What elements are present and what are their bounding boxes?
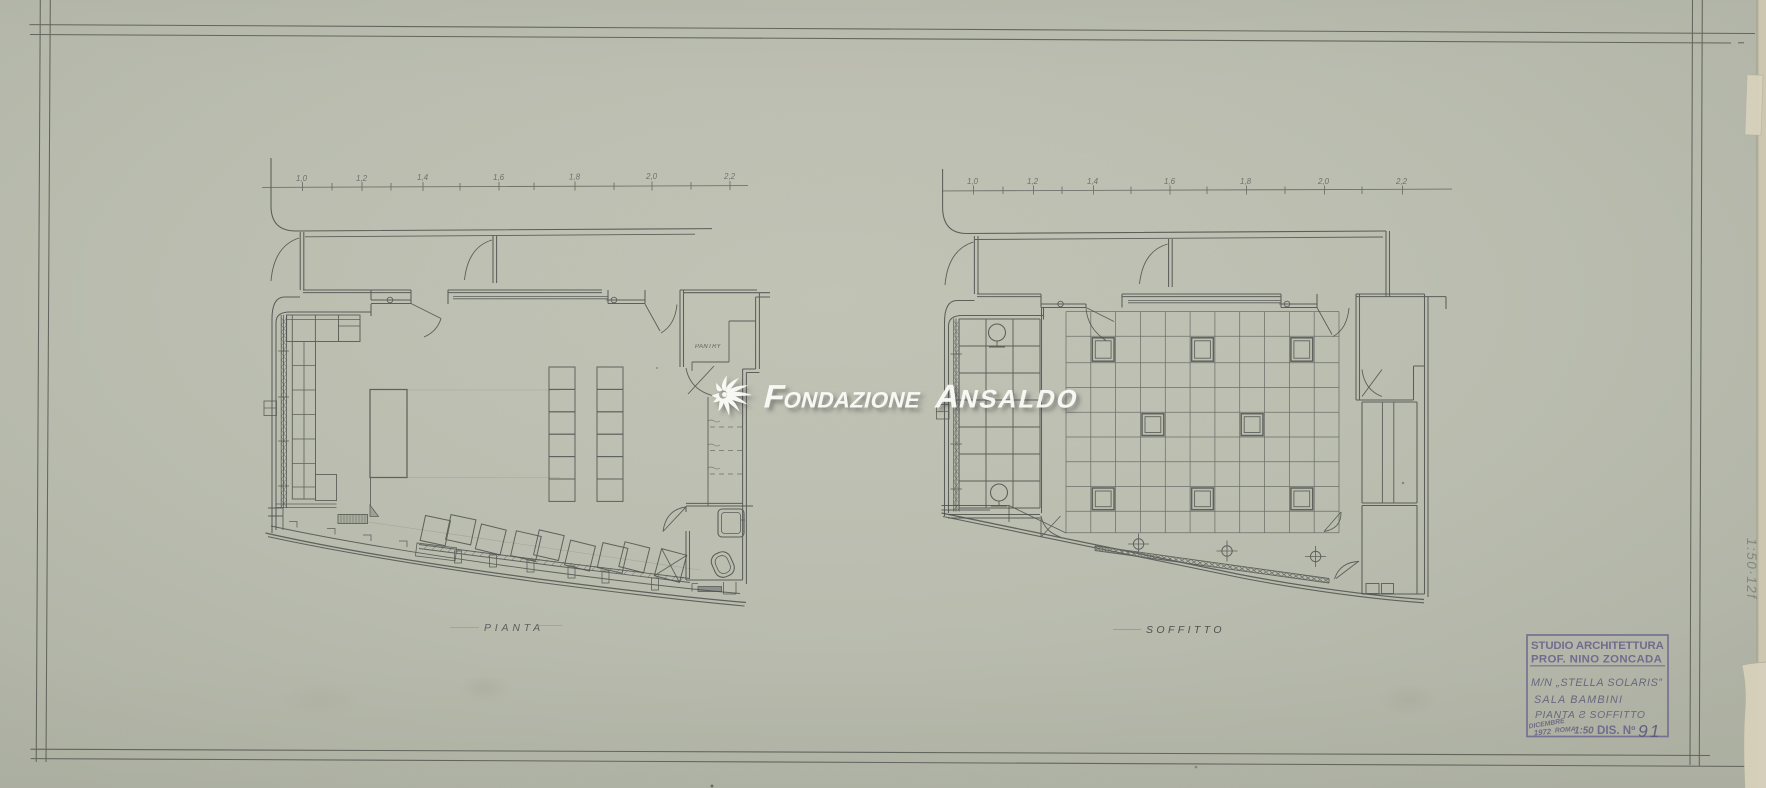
svg-text:PROF. NINO ZONCADA: PROF. NINO ZONCADA [1531, 654, 1662, 666]
svg-text:PIANTA: PIANTA [484, 622, 544, 634]
svg-text:PANTRY: PANTRY [695, 344, 722, 350]
svg-text:ROMA: ROMA [1555, 726, 1576, 734]
svg-text:1,8: 1,8 [569, 173, 581, 182]
svg-text:DIS. Nº: DIS. Nº [1597, 724, 1636, 737]
svg-text:1,0: 1,0 [296, 174, 308, 183]
svg-text:2,0: 2,0 [645, 172, 658, 181]
svg-text:2,0: 2,0 [1317, 177, 1330, 186]
svg-text:91: 91 [1638, 721, 1661, 741]
svg-text:1,2: 1,2 [356, 174, 368, 183]
svg-text:1,2: 1,2 [1027, 177, 1039, 186]
svg-text:1,4: 1,4 [1087, 177, 1099, 186]
svg-text:STUDIO ARCHITETTURA: STUDIO ARCHITETTURA [1531, 640, 1664, 652]
svg-text:SOFFITTO: SOFFITTO [1146, 624, 1225, 636]
svg-text:1,4: 1,4 [417, 173, 429, 182]
svg-text:1:50·12f: 1:50·12f [1744, 538, 1759, 600]
svg-text:1972: 1972 [1533, 727, 1552, 738]
svg-text:1,6: 1,6 [493, 173, 505, 182]
svg-text:1,6: 1,6 [1164, 177, 1176, 186]
svg-text:2,2: 2,2 [723, 172, 736, 181]
svg-text:1:50: 1:50 [1574, 726, 1594, 737]
svg-text:1,0: 1,0 [967, 177, 979, 186]
svg-text:2,2: 2,2 [1395, 177, 1408, 186]
svg-text:1,8: 1,8 [1240, 177, 1252, 186]
svg-text:M/N „STELLA SOLARIS‟: M/N „STELLA SOLARIS‟ [1531, 677, 1662, 689]
